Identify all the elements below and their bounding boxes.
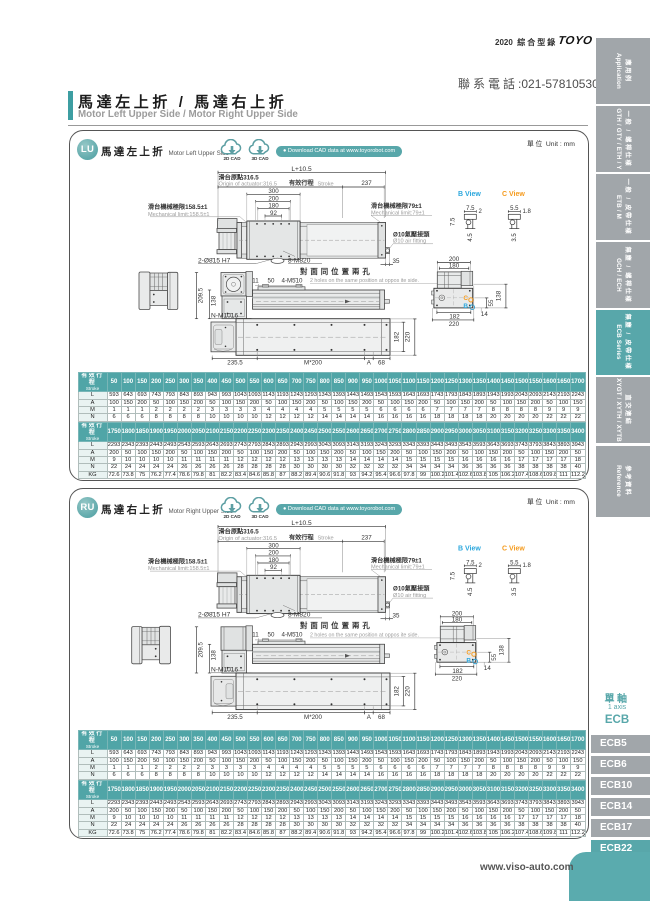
svg-text:C View: C View bbox=[502, 545, 525, 552]
svg-text:138: 138 bbox=[495, 290, 502, 301]
svg-text:55: 55 bbox=[491, 653, 498, 660]
svg-text:滑台原點316.5: 滑台原點316.5 bbox=[219, 173, 260, 181]
svg-text:300: 300 bbox=[268, 542, 279, 549]
svg-text:1.8: 1.8 bbox=[523, 209, 532, 215]
svg-text:B View: B View bbox=[458, 545, 481, 552]
svg-text:182: 182 bbox=[393, 331, 400, 342]
svg-text:237: 237 bbox=[361, 180, 372, 187]
svg-text:滑台機械極限79±1: 滑台機械極限79±1 bbox=[371, 202, 422, 210]
svg-text:Origin of actuator:316.5: Origin of actuator:316.5 bbox=[219, 182, 277, 188]
svg-text:L+10.5: L+10.5 bbox=[291, 520, 312, 527]
svg-text:92: 92 bbox=[270, 210, 277, 217]
svg-text:滑台機械極限158.5±1: 滑台機械極限158.5±1 bbox=[148, 558, 208, 566]
svg-text:182: 182 bbox=[393, 686, 400, 697]
svg-text:182: 182 bbox=[452, 668, 463, 675]
svg-text:200: 200 bbox=[268, 550, 279, 557]
svg-text:C: C bbox=[466, 650, 471, 657]
svg-text:C View: C View bbox=[502, 191, 525, 198]
svg-text:Ø10氣壓接頭: Ø10氣壓接頭 bbox=[393, 230, 430, 238]
svg-text:1.8: 1.8 bbox=[523, 563, 532, 569]
svg-text:A: A bbox=[367, 714, 372, 721]
svg-text:B: B bbox=[463, 303, 468, 310]
svg-text:有效行程: 有效行程 bbox=[289, 179, 315, 187]
svg-text:235.5: 235.5 bbox=[227, 360, 243, 367]
svg-text:92: 92 bbox=[270, 564, 277, 571]
svg-text:C: C bbox=[463, 295, 468, 302]
svg-text:220: 220 bbox=[405, 686, 412, 697]
svg-text:300: 300 bbox=[268, 188, 279, 195]
svg-text:2 holes on the same position a: 2 holes on the same position at oppos it… bbox=[310, 278, 419, 284]
svg-text:50: 50 bbox=[268, 632, 275, 639]
svg-text:68: 68 bbox=[378, 714, 385, 721]
svg-text:4-M5̄10: 4-M5̄10 bbox=[282, 277, 304, 284]
svg-text:M*200: M*200 bbox=[304, 714, 322, 721]
svg-text:209.5: 209.5 bbox=[198, 287, 205, 303]
svg-text:138: 138 bbox=[498, 645, 505, 656]
svg-text:7.5: 7.5 bbox=[451, 217, 457, 226]
svg-text:2 holes on the same position a: 2 holes on the same position at oppos it… bbox=[310, 632, 419, 638]
svg-text:55: 55 bbox=[488, 299, 495, 306]
svg-text:2: 2 bbox=[479, 209, 483, 215]
svg-text:對面同位置兩孔: 對面同位置兩孔 bbox=[300, 621, 373, 630]
svg-text:235.5: 235.5 bbox=[227, 714, 243, 721]
svg-text:35: 35 bbox=[393, 258, 400, 265]
svg-text:L+10.5: L+10.5 bbox=[291, 166, 312, 173]
svg-text:M*200: M*200 bbox=[304, 360, 322, 367]
svg-text:滑台機械極限158.5±1: 滑台機械極限158.5±1 bbox=[148, 203, 208, 211]
svg-text:滑台原點316.5: 滑台原點316.5 bbox=[219, 528, 260, 536]
svg-text:滑台機械極限79±1: 滑台機械極限79±1 bbox=[371, 556, 422, 564]
svg-text:237: 237 bbox=[361, 535, 372, 542]
svg-text:35: 35 bbox=[393, 612, 400, 619]
svg-text:對面同位置兩孔: 對面同位置兩孔 bbox=[300, 267, 373, 276]
svg-text:220: 220 bbox=[449, 321, 460, 328]
svg-text:11: 11 bbox=[252, 277, 259, 284]
svg-text:2: 2 bbox=[479, 563, 483, 569]
svg-text:220: 220 bbox=[452, 676, 463, 683]
svg-text:Ø10氣壓接頭: Ø10氣壓接頭 bbox=[393, 585, 430, 593]
svg-text:180: 180 bbox=[268, 203, 279, 210]
svg-text:有效行程: 有效行程 bbox=[289, 534, 315, 542]
svg-text:11: 11 bbox=[252, 632, 259, 639]
svg-text:180: 180 bbox=[268, 557, 279, 564]
svg-text:B: B bbox=[466, 658, 471, 665]
svg-text:14: 14 bbox=[481, 311, 488, 318]
svg-text:B View: B View bbox=[458, 191, 481, 198]
svg-text:200: 200 bbox=[268, 195, 279, 202]
svg-text:7.5: 7.5 bbox=[451, 571, 457, 580]
svg-text:Stroke: Stroke bbox=[318, 181, 334, 187]
svg-text:209.5: 209.5 bbox=[198, 641, 205, 657]
svg-text:182: 182 bbox=[449, 314, 460, 321]
svg-text:138: 138 bbox=[211, 650, 218, 661]
svg-text:3.5: 3.5 bbox=[512, 233, 518, 242]
svg-text:Origin of actuator:316.5: Origin of actuator:316.5 bbox=[219, 536, 277, 542]
svg-text:4.5: 4.5 bbox=[468, 587, 474, 596]
svg-text:4.5: 4.5 bbox=[468, 233, 474, 242]
svg-text:220: 220 bbox=[405, 331, 412, 342]
svg-text:14: 14 bbox=[484, 665, 491, 672]
svg-text:138: 138 bbox=[211, 295, 218, 306]
svg-text:3.5: 3.5 bbox=[512, 587, 518, 596]
svg-text:Stroke: Stroke bbox=[318, 536, 334, 542]
svg-text:4-M5̄10: 4-M5̄10 bbox=[282, 632, 304, 639]
svg-text:A: A bbox=[367, 360, 372, 367]
svg-text:50: 50 bbox=[268, 277, 275, 284]
svg-text:68: 68 bbox=[378, 360, 385, 367]
